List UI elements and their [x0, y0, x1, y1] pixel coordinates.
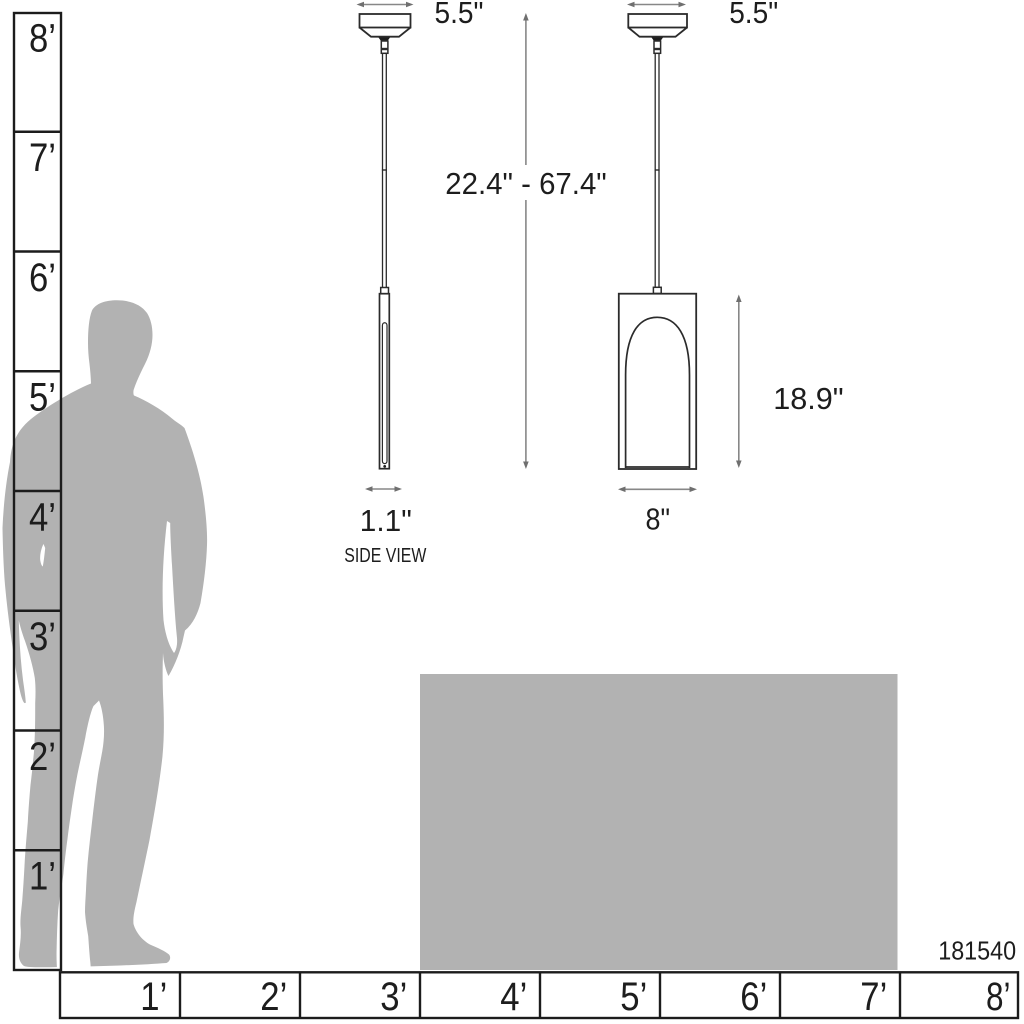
svg-text:18.9": 18.9" [773, 381, 844, 416]
svg-text:3’: 3’ [29, 615, 56, 659]
svg-text:6’: 6’ [740, 975, 767, 1019]
svg-text:2’: 2’ [260, 975, 287, 1019]
svg-text:4’: 4’ [500, 975, 527, 1019]
svg-text:8’: 8’ [986, 975, 1011, 1019]
svg-text:2’: 2’ [29, 735, 56, 779]
svg-text:6’: 6’ [29, 256, 56, 300]
svg-text:5’: 5’ [29, 376, 56, 420]
svg-text:4’: 4’ [29, 495, 56, 539]
svg-text:8": 8" [646, 502, 671, 537]
svg-text:5.5": 5.5" [435, 0, 484, 30]
svg-text:181540: 181540 [938, 936, 1016, 966]
svg-text:3’: 3’ [380, 975, 407, 1019]
svg-text:5’: 5’ [620, 975, 647, 1019]
svg-text:7’: 7’ [860, 975, 887, 1019]
svg-text:5.5": 5.5" [729, 0, 778, 30]
svg-text:8’: 8’ [29, 16, 56, 60]
svg-text:1’: 1’ [140, 975, 167, 1019]
svg-text:1.1": 1.1" [360, 503, 412, 538]
svg-text:SIDE VIEW: SIDE VIEW [344, 545, 426, 567]
svg-text:1’: 1’ [29, 855, 56, 899]
svg-text:7’: 7’ [29, 136, 56, 180]
svg-text:22.4" - 67.4": 22.4" - 67.4" [445, 166, 607, 201]
